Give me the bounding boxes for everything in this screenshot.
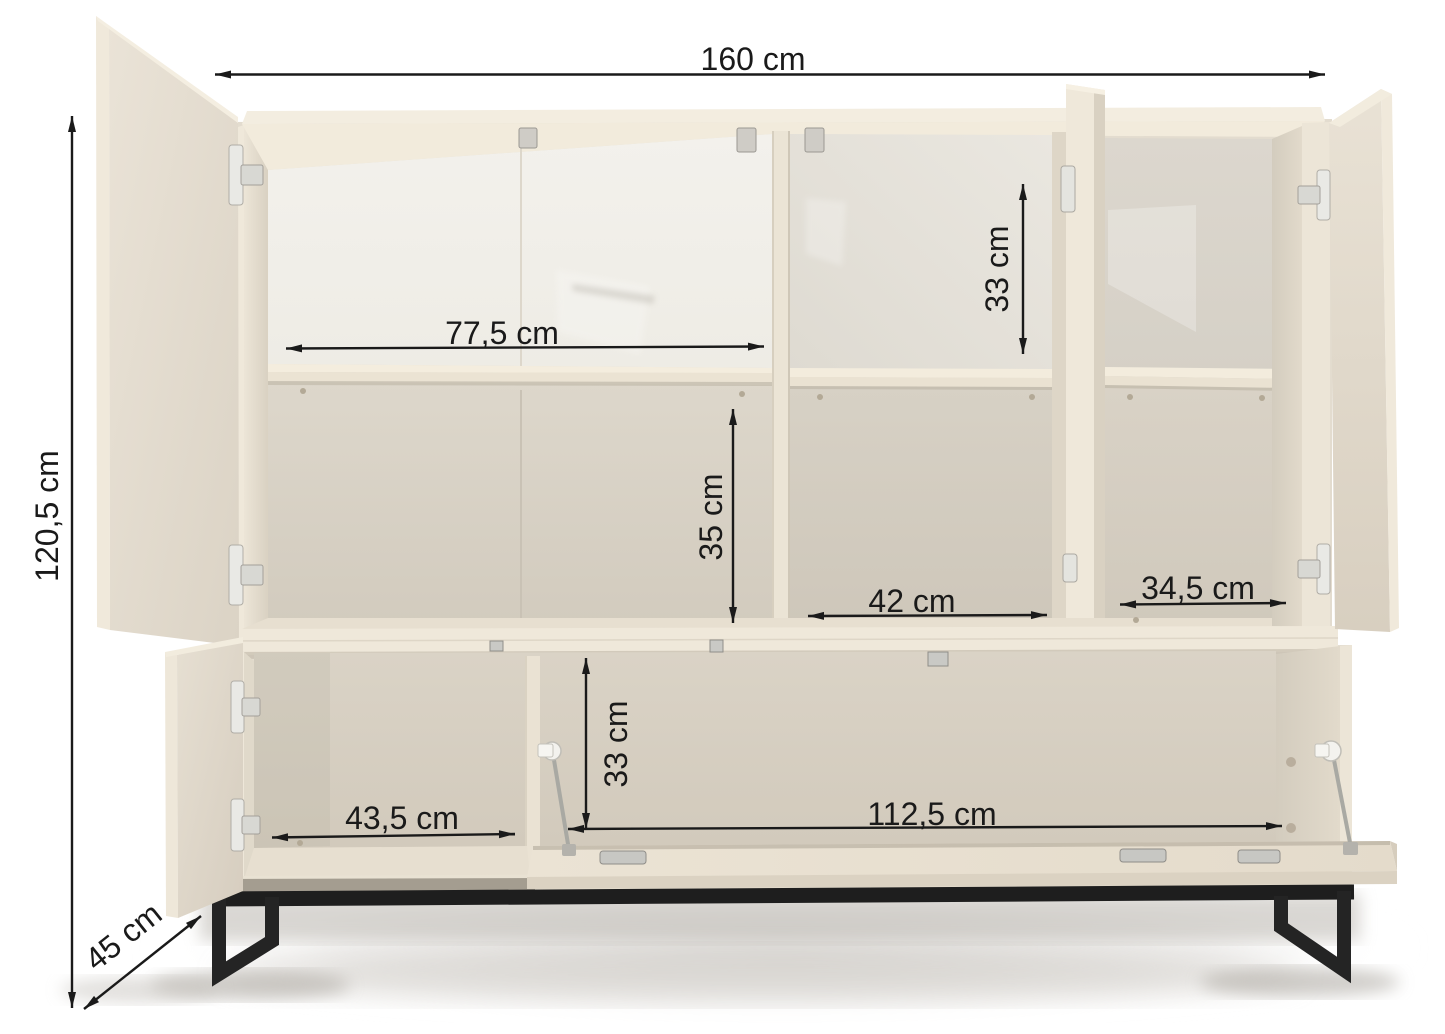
svg-text:35 cm: 35 cm: [693, 473, 729, 560]
svg-text:120,5 cm: 120,5 cm: [29, 450, 65, 582]
svg-text:33 cm: 33 cm: [598, 700, 634, 787]
svg-text:160 cm: 160 cm: [701, 41, 806, 77]
svg-text:42 cm: 42 cm: [868, 583, 955, 619]
svg-text:43,5 cm: 43,5 cm: [345, 800, 459, 836]
svg-text:33 cm: 33 cm: [979, 225, 1015, 312]
svg-text:34,5 cm: 34,5 cm: [1141, 570, 1255, 606]
svg-text:112,5 cm: 112,5 cm: [867, 796, 996, 832]
svg-text:77,5 cm: 77,5 cm: [445, 315, 559, 351]
